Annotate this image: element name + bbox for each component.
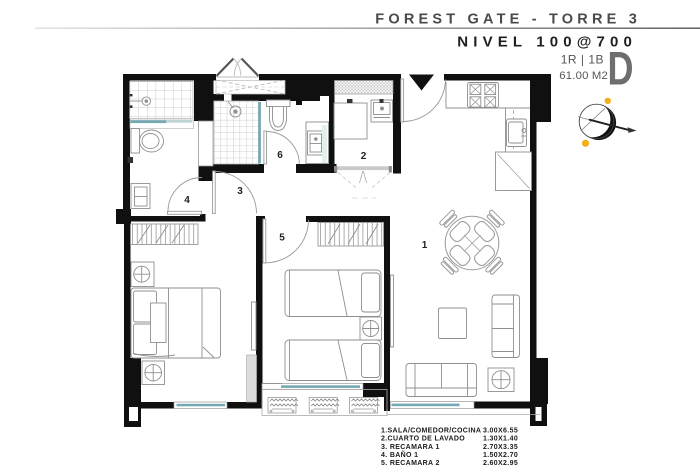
- svg-text:1.50X2.70: 1.50X2.70: [483, 452, 518, 459]
- svg-text:4: 4: [184, 195, 190, 206]
- svg-text:6: 6: [277, 150, 283, 161]
- svg-text:FOREST GATE - TORRE 3: FOREST GATE - TORRE 3: [375, 12, 641, 28]
- svg-text:4. BAÑO 1: 4. BAÑO 1: [381, 450, 418, 459]
- svg-text:2.60X2.95: 2.60X2.95: [483, 460, 518, 466]
- svg-text:2.70X3.35: 2.70X3.35: [483, 444, 518, 451]
- svg-text:1.SALA/COMEDOR/COCINA: 1.SALA/COMEDOR/COCINA: [381, 428, 481, 435]
- svg-text:5. RECAMARA 2: 5. RECAMARA 2: [381, 460, 440, 466]
- svg-text:3.00X6.55: 3.00X6.55: [483, 428, 518, 435]
- svg-text:1.30X1.40: 1.30X1.40: [483, 436, 518, 443]
- svg-text:1: 1: [422, 240, 428, 251]
- svg-text:1R | 1B: 1R | 1B: [561, 53, 604, 67]
- svg-text:3. RECAMARA 1: 3. RECAMARA 1: [381, 444, 440, 451]
- svg-text:2: 2: [361, 151, 367, 162]
- svg-text:D: D: [608, 43, 634, 96]
- svg-text:61.00 M2: 61.00 M2: [559, 70, 608, 82]
- svg-text:3: 3: [237, 186, 243, 197]
- svg-text:2.CUARTO DE LAVADO: 2.CUARTO DE LAVADO: [381, 436, 465, 443]
- svg-text:5: 5: [279, 233, 285, 244]
